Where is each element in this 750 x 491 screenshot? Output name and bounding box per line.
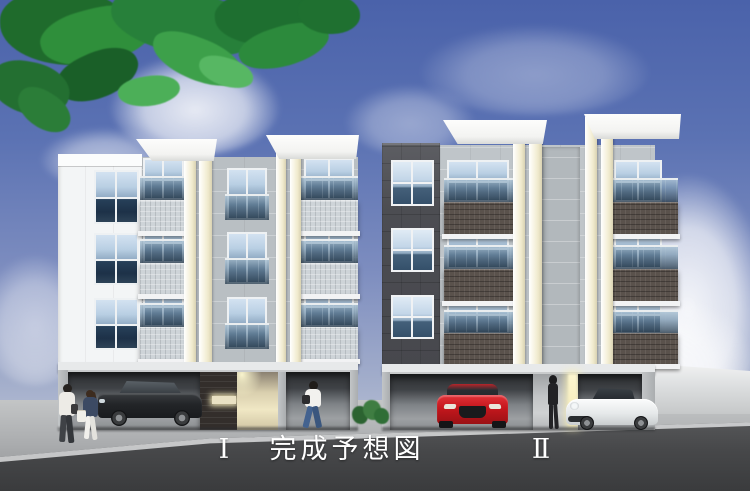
building1-balcony-rail	[300, 176, 358, 200]
building1-balcony-rail	[140, 176, 187, 200]
balcony-slab	[138, 231, 189, 236]
building2-balcony-rail	[610, 178, 678, 202]
building1-entrance-corridor	[237, 372, 278, 430]
sports-car-headlight	[570, 402, 579, 410]
red-car-grille	[459, 406, 486, 418]
building1-parking-fascia	[58, 362, 358, 372]
building2-balcony-panel	[444, 269, 514, 302]
red-car	[437, 384, 508, 428]
red-car-headlight	[488, 404, 501, 409]
person-bag	[77, 410, 86, 422]
building1-juliet-rail	[225, 194, 269, 220]
building1-window	[94, 233, 139, 285]
building2-balcony-panel	[610, 202, 678, 235]
rendering-title: 完成予想図	[270, 435, 425, 465]
building1-pillar-fin	[184, 142, 196, 370]
person-torso	[548, 383, 558, 405]
building2-window	[391, 228, 434, 272]
shrub	[352, 400, 390, 430]
building1-balcony-panel	[140, 327, 187, 360]
person-bag	[302, 395, 310, 404]
suv-wheel	[111, 410, 127, 426]
building1-pillar-fin	[276, 140, 286, 370]
building2-balcony-panel	[610, 333, 678, 365]
building1-pier	[278, 372, 286, 430]
building2-parking-fascia	[382, 364, 655, 374]
architectural-rendering-scene: Ⅰ 完成予想図 Ⅱ	[0, 0, 750, 491]
building1-canopy	[264, 135, 359, 159]
person-leg	[553, 404, 559, 429]
building1-juliet-rail	[225, 323, 269, 349]
dark-suv-car	[98, 380, 202, 427]
red-car-headlight	[443, 404, 456, 409]
person-leg	[89, 416, 97, 440]
building2-pillar-fin	[513, 122, 525, 368]
building1-balcony-panel	[300, 327, 358, 360]
building1-juliet-rail	[225, 258, 269, 284]
building1-pillar-fin	[199, 142, 212, 370]
building2-window	[391, 295, 434, 339]
building1-balcony-panel	[140, 200, 187, 232]
building1-balcony-rail	[140, 303, 187, 327]
building2-balcony-rail	[444, 178, 514, 202]
building1-window	[94, 170, 139, 224]
building2-balcony-panel	[444, 202, 514, 235]
building1-balcony-rail	[140, 239, 187, 263]
building2-entrance-tower	[542, 147, 580, 368]
building2-balcony-panel	[610, 269, 678, 302]
pedestrian-woman-navy-top	[79, 390, 103, 443]
balcony-slab	[138, 294, 189, 299]
building1-balcony-rail	[300, 303, 358, 327]
building2-balcony-rail	[444, 310, 514, 333]
building2-balcony-rail	[444, 245, 514, 269]
building1-balcony-panel	[300, 263, 358, 295]
building2-canopy	[443, 120, 547, 144]
building2-pillar-fin	[529, 122, 542, 368]
building1-road-label: Ⅰ	[219, 435, 230, 465]
red-car-wheel	[439, 421, 453, 428]
balcony-slab	[608, 234, 680, 239]
building1-pillar-fin	[290, 140, 301, 370]
neighbor-wall	[652, 364, 750, 414]
building1-nameplate-sign	[212, 396, 236, 404]
balcony-slab	[442, 301, 516, 306]
building2-balcony-panel	[444, 333, 514, 365]
sports-car-wheel	[634, 416, 648, 430]
building2-balcony-rail	[610, 245, 678, 269]
white-sports-car	[566, 388, 658, 430]
person-leg	[66, 415, 75, 443]
building2-window	[391, 160, 434, 206]
person-leg	[312, 406, 322, 429]
building1-balcony-rail	[300, 239, 358, 263]
building2-pillar-fin	[601, 117, 613, 368]
balcony-slab	[298, 294, 360, 299]
building2-road-label: Ⅱ	[532, 435, 550, 465]
building1-balcony-panel	[140, 263, 187, 295]
building2-pillar-fin	[585, 117, 597, 368]
suv-wheel	[174, 410, 190, 426]
sports-car-wheel	[580, 416, 594, 430]
building2-canopy	[581, 114, 681, 139]
building1-window	[94, 298, 139, 350]
red-car-wheel	[492, 421, 506, 428]
building1-balcony-panel	[300, 200, 358, 232]
building2-balcony-rail	[610, 310, 678, 333]
balcony-slab	[442, 234, 516, 239]
pedestrian-woman-silhouette	[544, 375, 562, 431]
balcony-slab	[298, 231, 360, 236]
pedestrian-man-white-tee	[301, 381, 327, 431]
balcony-slab	[608, 301, 680, 306]
